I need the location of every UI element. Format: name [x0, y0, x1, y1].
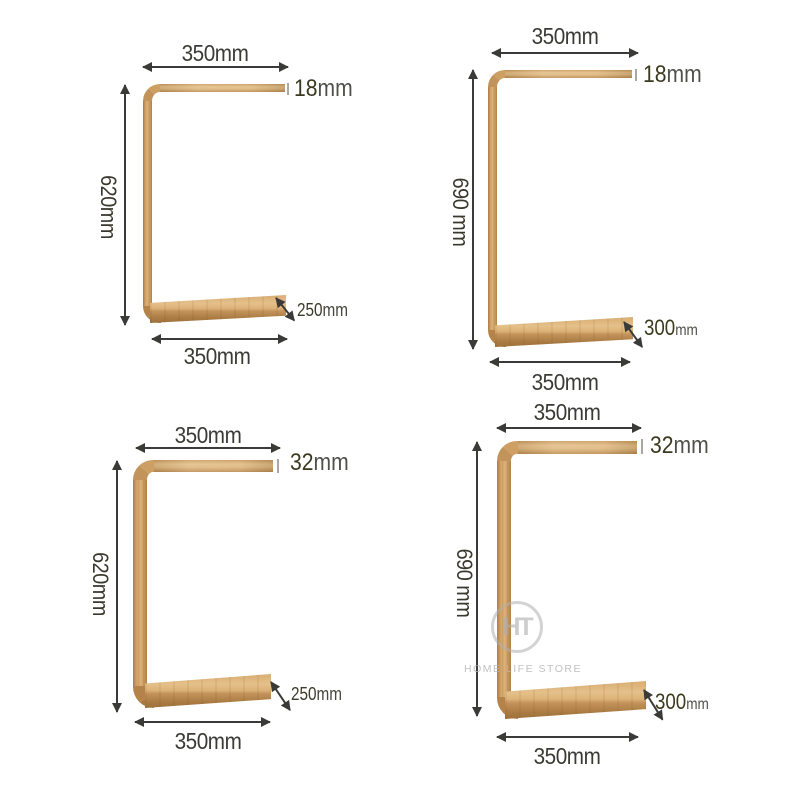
leg [497, 461, 511, 697]
bottom-width-arrow [497, 736, 638, 738]
leg [133, 480, 147, 688]
top-width-arrow [136, 447, 280, 449]
tabletop-corner [497, 441, 518, 462]
watermark-store-name: HOME LIFE STORE [443, 663, 603, 675]
tabletop [154, 460, 273, 472]
top-width-label: 350mm [509, 24, 621, 49]
tabletop-corner [143, 84, 161, 101]
height-label: 620mm [94, 140, 120, 275]
leg [488, 87, 497, 330]
top-width-arrow [143, 66, 288, 68]
watermark-logo-circle: HT [491, 601, 543, 653]
top-width-label: 350mm [152, 423, 264, 448]
bottom-width-label: 350mm [509, 370, 621, 395]
height-arrow [124, 85, 126, 325]
depth-label: 300mm [655, 690, 709, 714]
tabletop [160, 84, 285, 92]
thickness-label: 18mm [294, 76, 353, 102]
base-shelf [495, 317, 633, 347]
height-label: 690 mm [450, 516, 476, 651]
product-dimension-diagram: 350mm 18mm 620mm 250mm 350mm 350mm 18mm [0, 0, 800, 800]
thickness-label: 32mm [650, 433, 709, 459]
tabletop [518, 441, 637, 454]
tabletop-corner [488, 70, 506, 87]
tabletop [505, 70, 632, 78]
thickness-label: 32mm [290, 450, 349, 476]
thickness-tick [635, 69, 637, 81]
watermark-monogram: HT [502, 613, 531, 642]
thickness-tick [277, 459, 279, 473]
height-label: 620mm [86, 517, 112, 652]
height-arrow [116, 461, 118, 712]
thickness-tick [641, 439, 643, 454]
top-width-label: 350mm [159, 41, 271, 66]
bottom-width-arrow [135, 721, 270, 723]
depth-label: 300mm [644, 316, 698, 340]
base-shelf [145, 674, 271, 708]
depth-label: 250mm [297, 301, 348, 321]
thickness-tick [287, 83, 289, 95]
bottom-width-arrow [490, 361, 630, 363]
height-label: 690 mm [446, 145, 472, 280]
top-width-arrow [497, 427, 641, 429]
tabletop-corner [133, 460, 154, 480]
bottom-width-label: 350mm [161, 344, 273, 369]
top-width-arrow [492, 52, 638, 54]
base-shelf [150, 295, 286, 323]
leg [143, 101, 152, 307]
base-shelf [505, 681, 646, 719]
bottom-width-label: 350mm [511, 744, 623, 769]
bottom-width-arrow [152, 338, 287, 340]
depth-arrow [270, 681, 291, 710]
bottom-width-label: 350mm [152, 729, 264, 754]
depth-label: 250mm [291, 685, 342, 705]
top-width-label: 350mm [511, 400, 623, 425]
thickness-label: 18mm [643, 62, 702, 88]
